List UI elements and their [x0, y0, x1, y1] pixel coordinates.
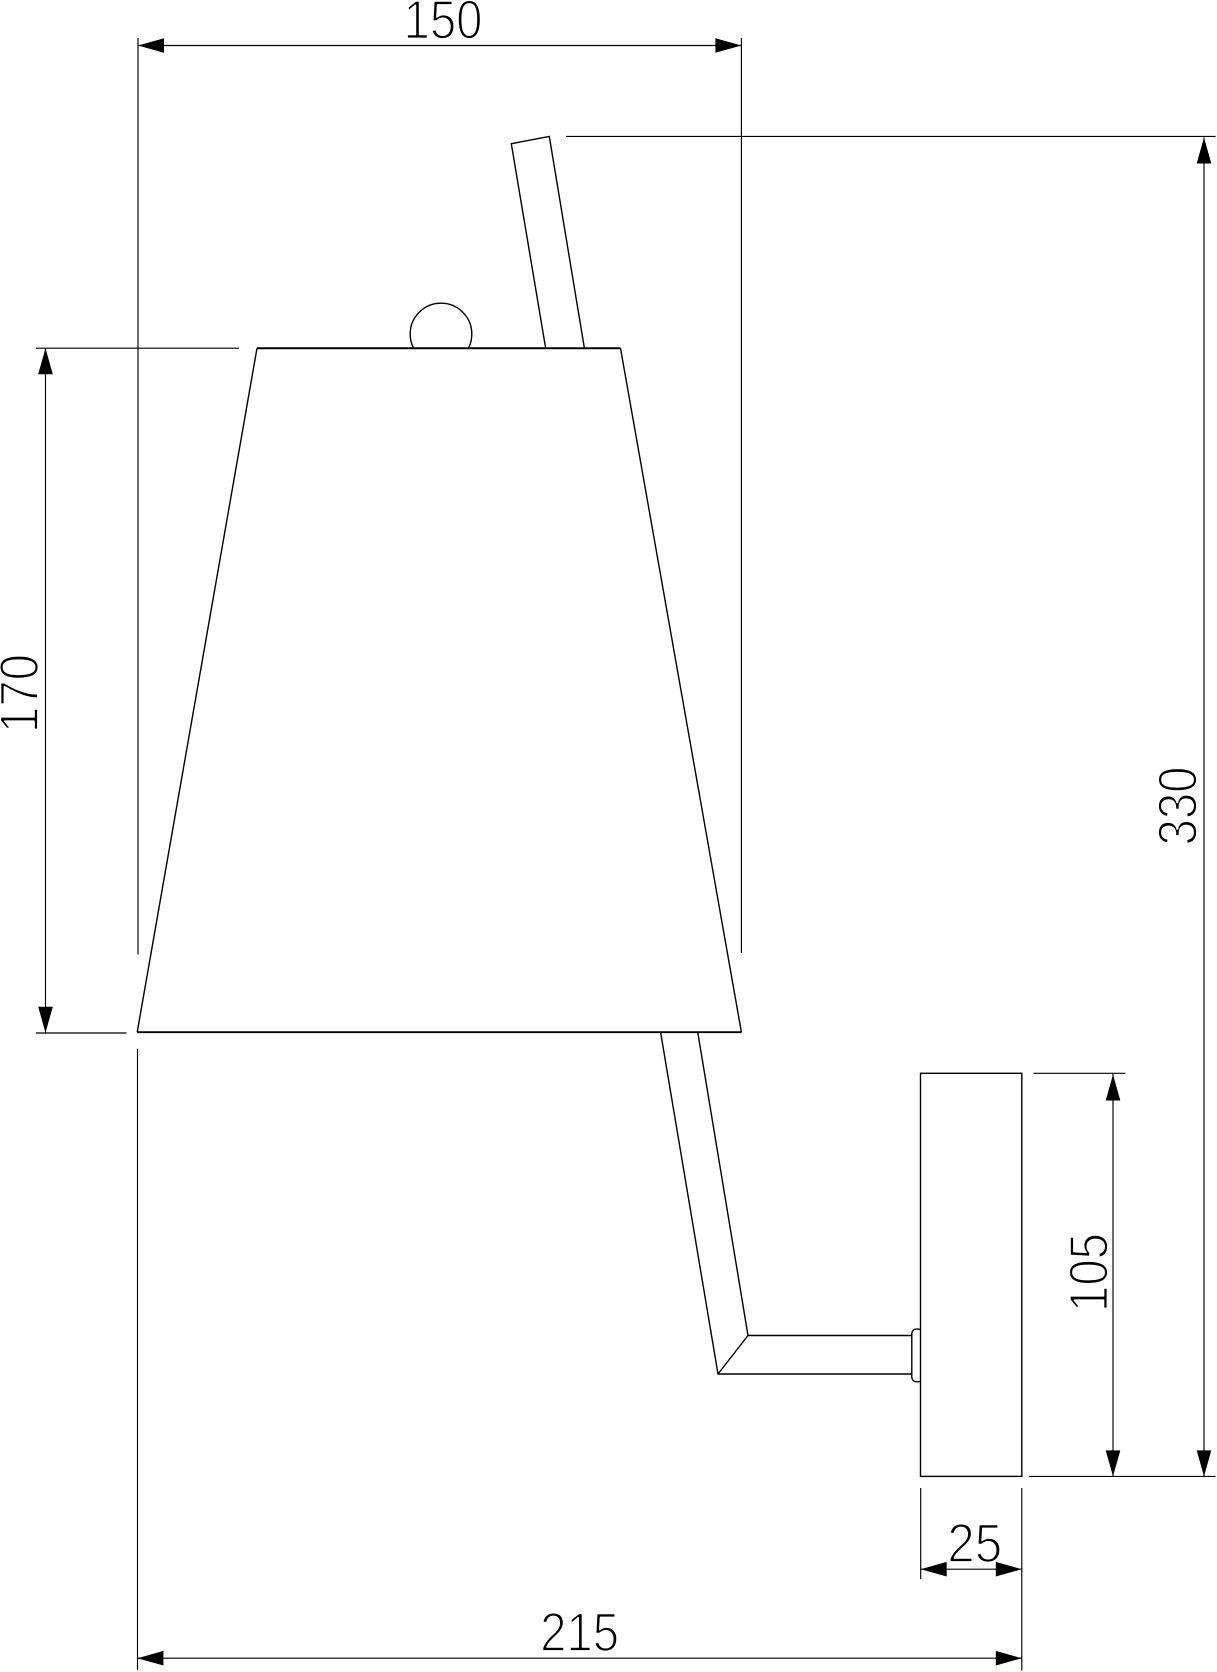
svg-text:150: 150 — [404, 0, 483, 51]
svg-text:105: 105 — [1058, 1233, 1120, 1312]
svg-text:170: 170 — [0, 654, 50, 733]
svg-text:330: 330 — [1147, 767, 1209, 846]
svg-text:215: 215 — [540, 1601, 619, 1663]
svg-text:25: 25 — [947, 1512, 1002, 1574]
